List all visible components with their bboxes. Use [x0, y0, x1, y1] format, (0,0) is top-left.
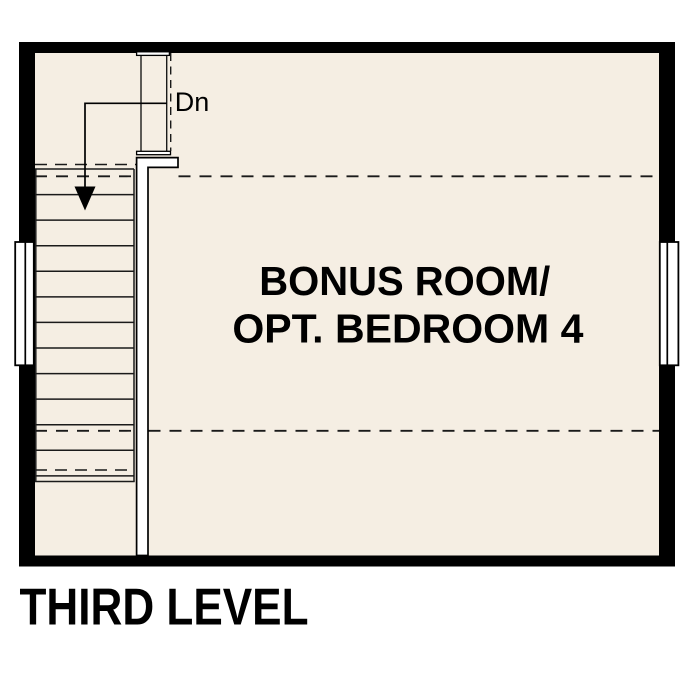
svg-text:Dn: Dn — [175, 87, 210, 117]
svg-text:OPT. BEDROOM 4: OPT. BEDROOM 4 — [232, 306, 583, 352]
svg-text:BONUS ROOM/: BONUS ROOM/ — [259, 258, 550, 304]
svg-text:THIRD LEVEL: THIRD LEVEL — [20, 579, 309, 637]
